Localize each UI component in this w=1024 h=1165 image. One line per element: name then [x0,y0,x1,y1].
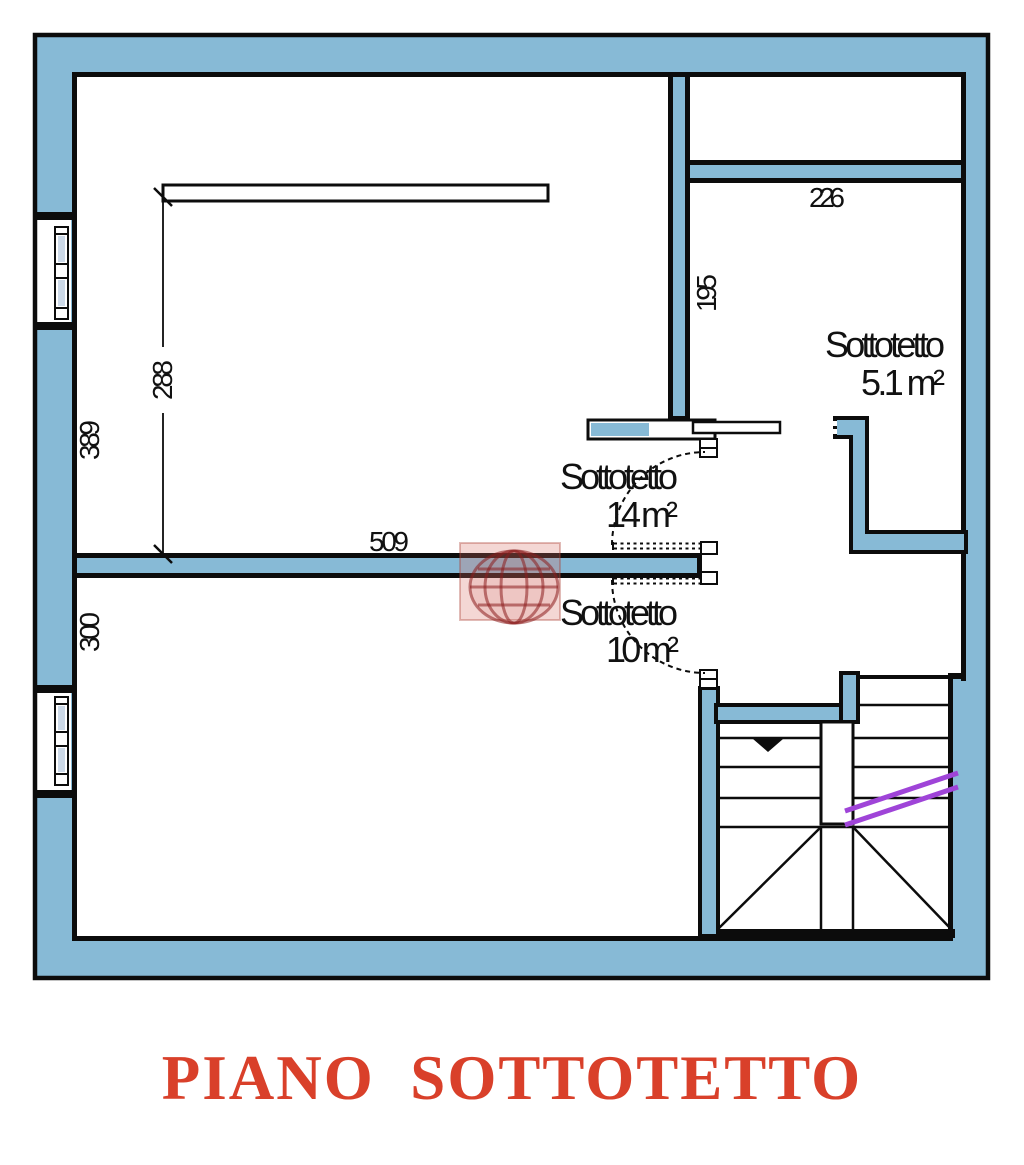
stairs-down-arrow-icon [753,739,783,752]
dim-300: 300 [74,612,105,652]
floor-plan-page: 288 389 300 195 226 509 [0,0,1024,1165]
room-labels: Sottotetto 14 m² Sottotetto 10 m² Sottot… [560,324,945,670]
staircase [718,705,958,929]
wall-fills [37,37,986,976]
door-jambs [700,542,717,688]
sliding-door [588,420,780,457]
dim-288: 288 [147,360,178,400]
floor-plan-svg: 288 389 300 195 226 509 [0,0,1024,1165]
room10-name: Sottotetto [560,592,678,633]
room14-name: Sottotetto [560,456,678,497]
dim-389: 389 [74,420,105,460]
room51-area: 5.1 m² [861,362,945,403]
attic-l-wall [833,418,966,552]
window-bottom [33,685,72,798]
globe-watermark-icon [460,543,560,623]
window-top [33,212,72,330]
room51-name: Sottotetto [825,324,945,365]
dim-195: 195 [691,274,722,312]
dim-226: 226 [809,182,845,213]
dim-509: 509 [369,526,409,557]
plan-title: PIANO SOTTOTETTO [0,1042,1024,1115]
room10-area: 10 m² [606,629,679,670]
beam-line [163,185,548,201]
room14-area: 14 m² [606,494,678,535]
